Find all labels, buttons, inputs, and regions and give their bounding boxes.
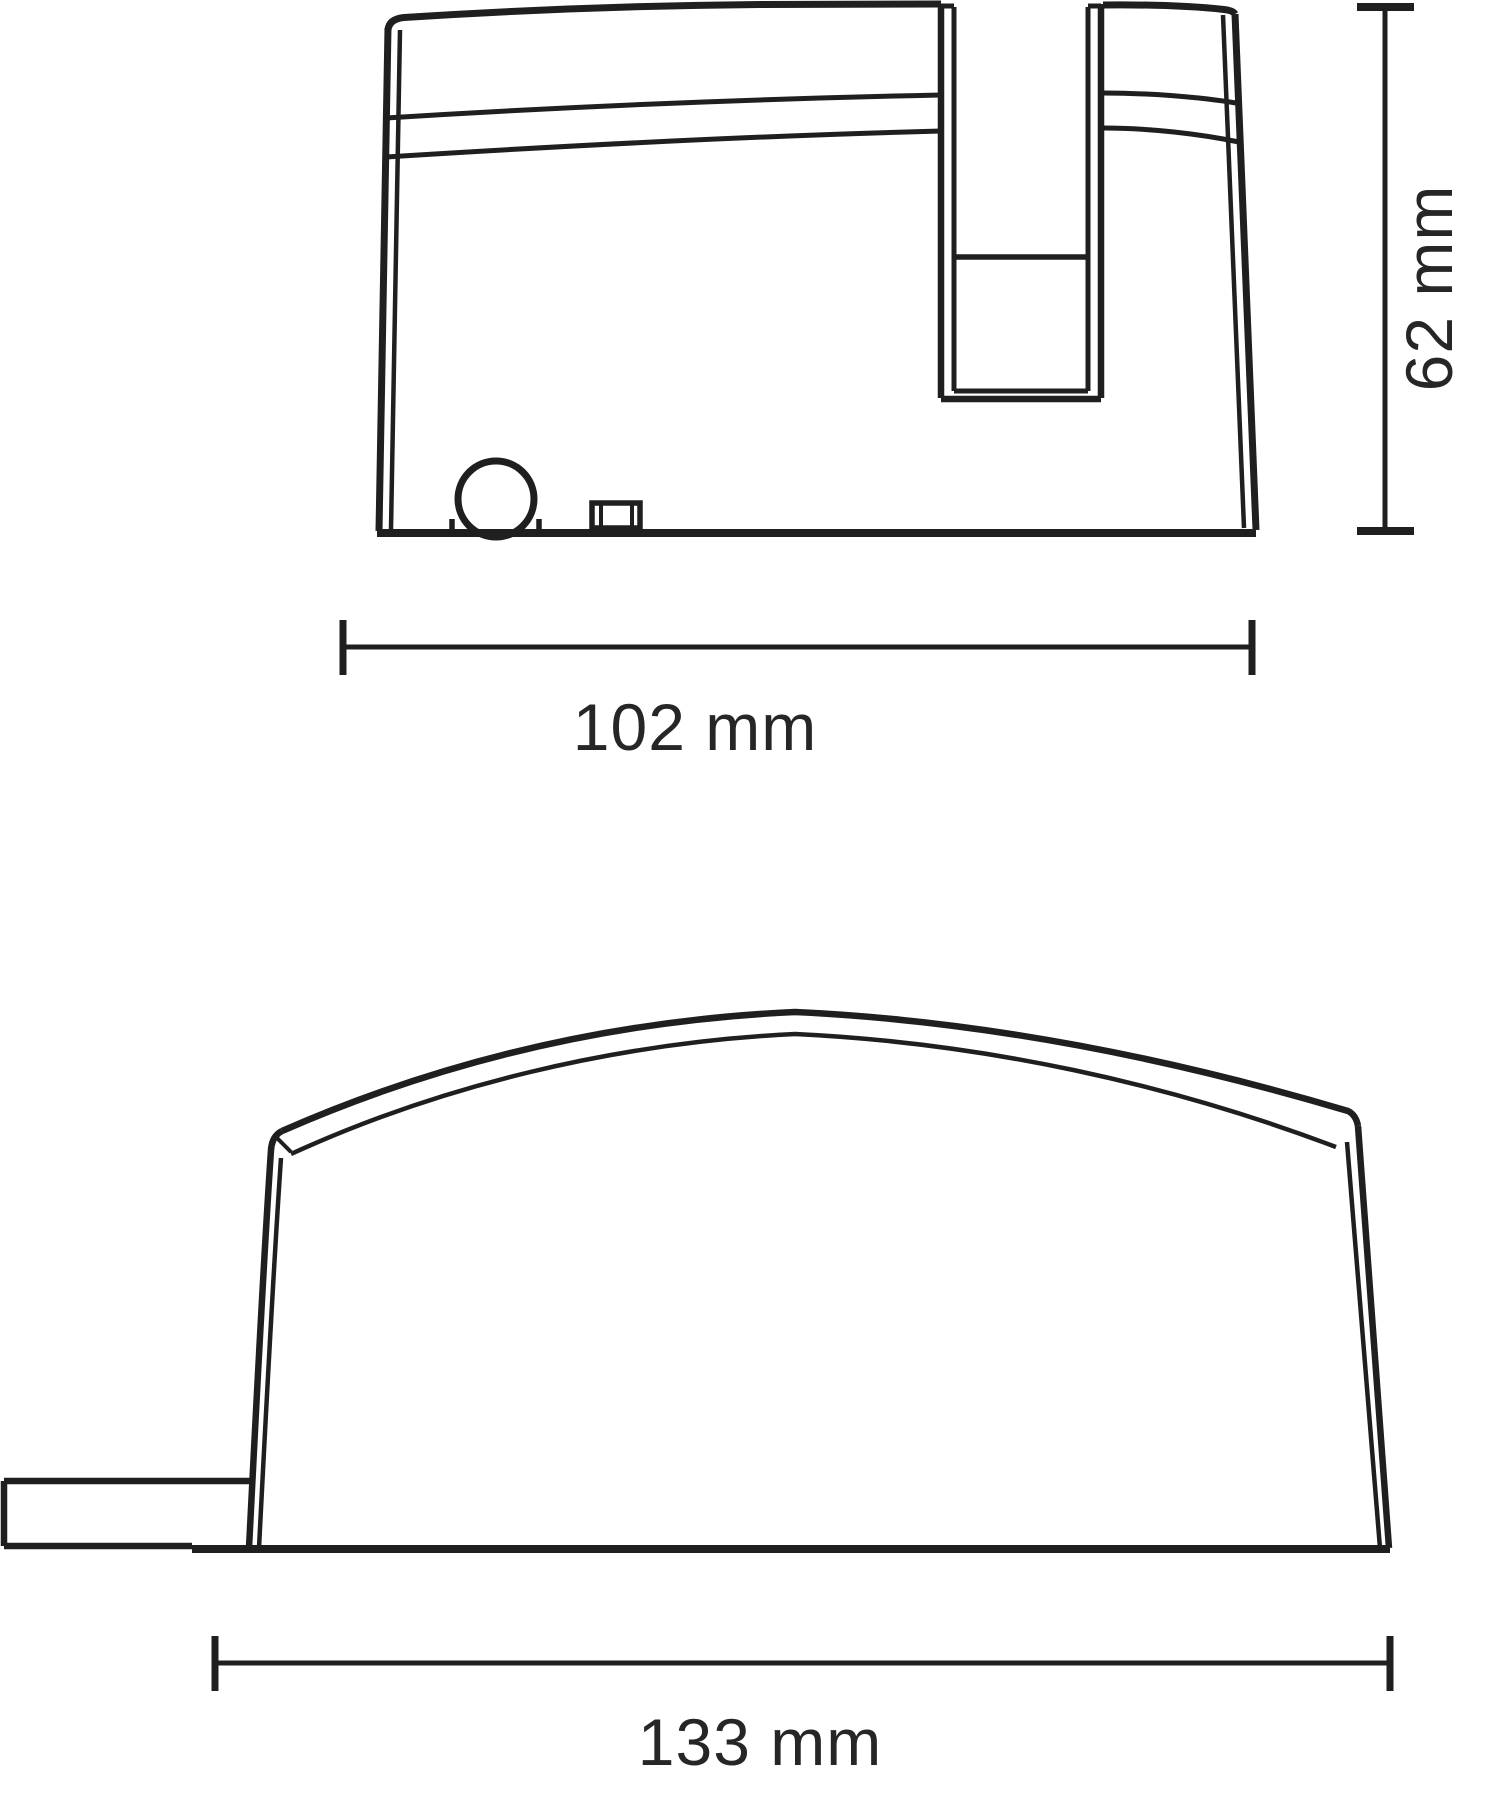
dimension-label-102mm: 102 mm: [573, 690, 817, 764]
technical-drawing-svg: 102 mm 62 mm: [0, 0, 1500, 1794]
dimension-label-133mm: 133 mm: [638, 1705, 882, 1779]
dimension-side-height: 62 mm: [1357, 7, 1466, 531]
side-view-drawing: [377, 4, 1256, 537]
seam-line-lower-left: [386, 131, 941, 157]
seam-line-upper-right: [1103, 93, 1236, 103]
cable-tab: [4, 1481, 252, 1546]
dimension-front-width: 133 mm: [215, 1636, 1390, 1779]
seam-line-lower-right: [1103, 128, 1239, 142]
u-slot: [941, 4, 1101, 399]
clip-slot: [592, 503, 640, 528]
front-seam-arc: [291, 1034, 1336, 1154]
dimension-drawing-page: 102 mm 62 mm: [0, 0, 1500, 1794]
seam-line-upper-left: [386, 95, 941, 118]
front-view-drawing: [4, 1012, 1390, 1549]
dimension-side-width: 102 mm: [343, 620, 1252, 764]
dimension-label-62mm: 62 mm: [1392, 185, 1466, 392]
cable-hole-circle: [458, 461, 534, 537]
